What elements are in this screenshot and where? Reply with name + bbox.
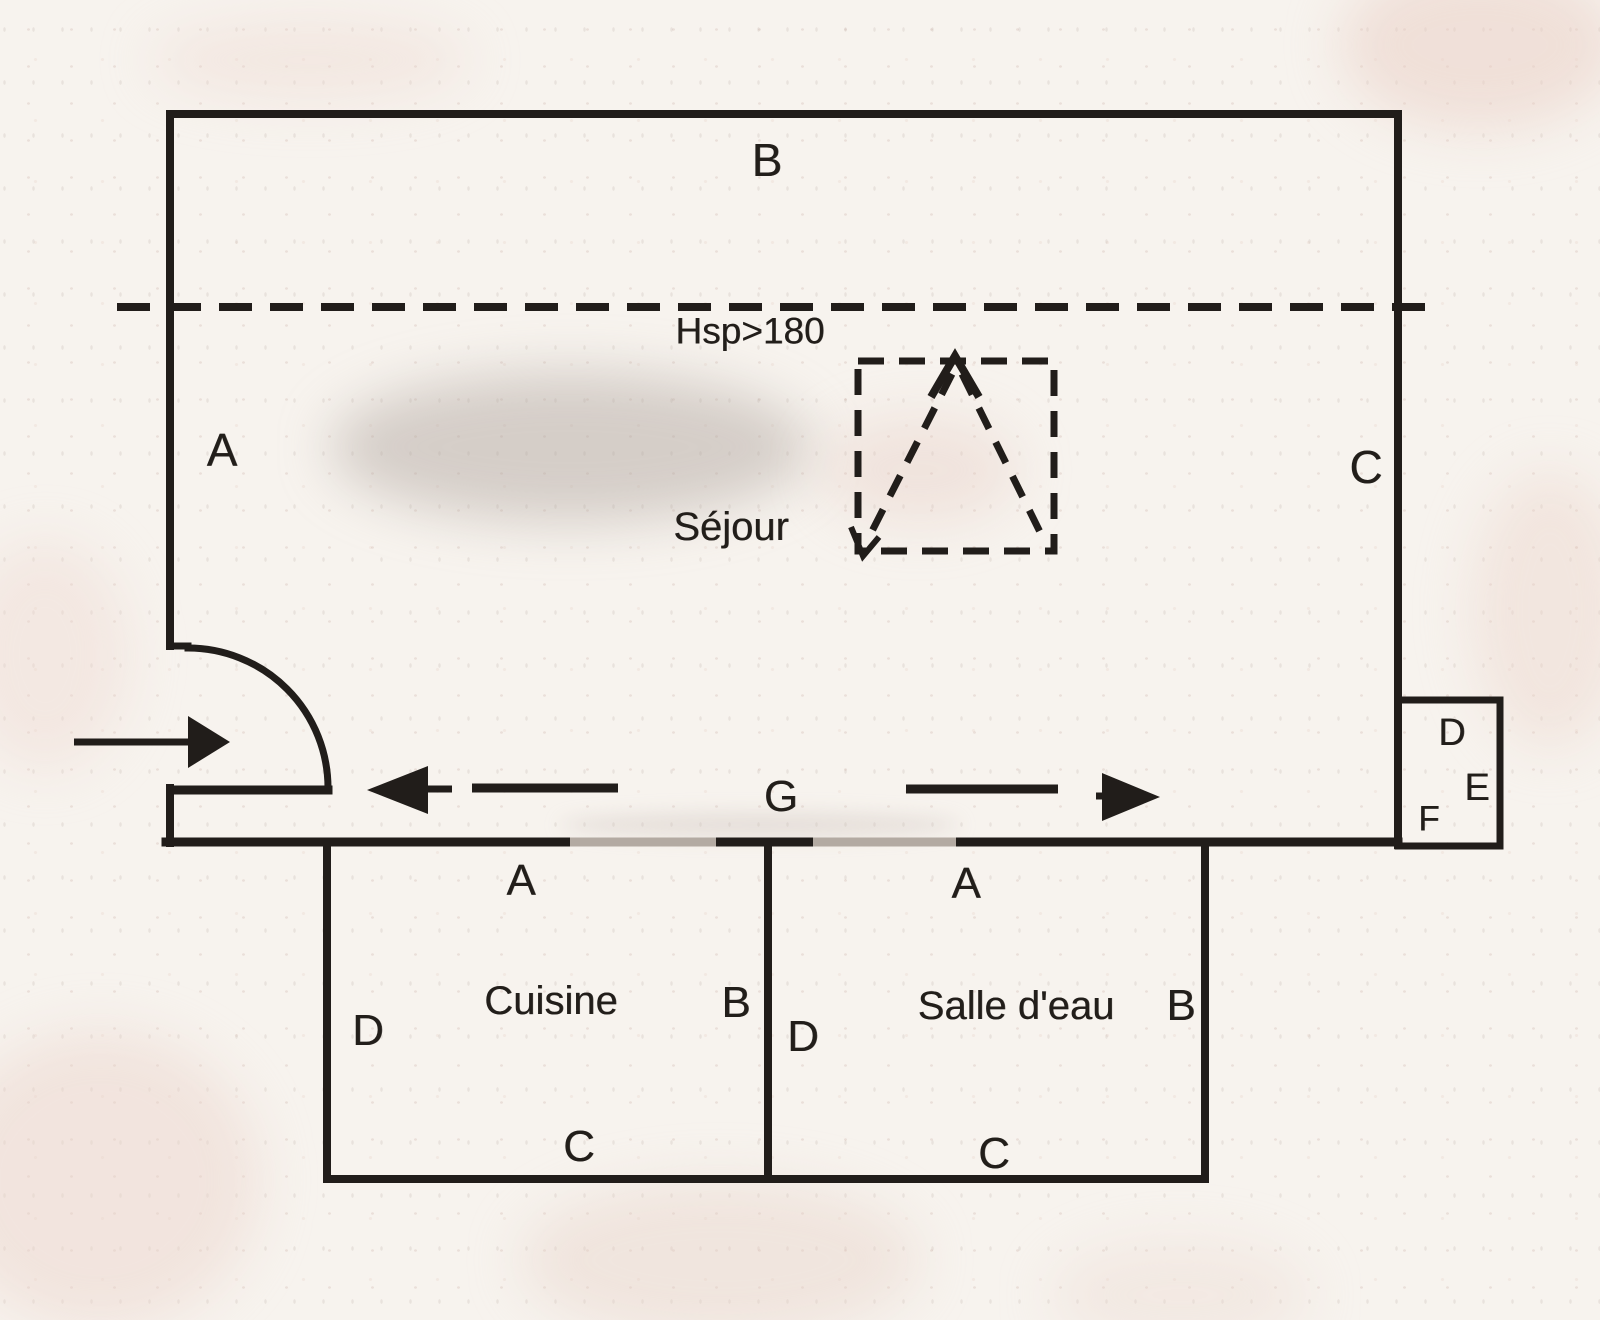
sejour-wall-label-left: A [207, 427, 238, 473]
plan-linework [0, 0, 1600, 1320]
sejour-room-name: Séjour [673, 507, 789, 547]
annex-label-d: D [1438, 714, 1465, 752]
entry-arrow-icon [74, 716, 230, 768]
salle-deau-wall-label-left: D [787, 1015, 819, 1059]
ceiling-height-note: Hsp>180 [675, 313, 824, 350]
circulation-left-arrow-icon [367, 766, 618, 814]
sejour-wall-label-right: C [1349, 444, 1382, 490]
cuisine-wall-label-right: B [721, 981, 750, 1025]
cuisine-wall-label-top: A [506, 859, 535, 903]
annex-label-f: F [1418, 802, 1439, 837]
entry-door [172, 648, 328, 790]
salle-deau-room-name: Salle d'eau [918, 986, 1115, 1026]
cuisine-room-name: Cuisine [484, 981, 617, 1021]
salle-deau-wall-label-bottom: C [978, 1132, 1010, 1176]
salle-deau-wall-label-top: A [951, 862, 980, 906]
sejour-walls [166, 114, 1398, 845]
sejour-wall-label-top: B [752, 137, 783, 183]
scanned-floor-plan: B A C Hsp>180 Séjour G D E F A Cuisine D… [0, 0, 1600, 1320]
cuisine-wall-label-left: D [352, 1009, 384, 1053]
circulation-right-arrow-icon [906, 773, 1160, 821]
cuisine-wall-label-bottom: C [563, 1125, 595, 1169]
annex-label-e: E [1464, 769, 1489, 807]
roof-window-dashed-marker [851, 356, 1054, 556]
passage-label-g: G [764, 775, 798, 819]
salle-deau-wall-label-right: B [1166, 984, 1195, 1028]
up-arrow-icon [931, 356, 979, 397]
